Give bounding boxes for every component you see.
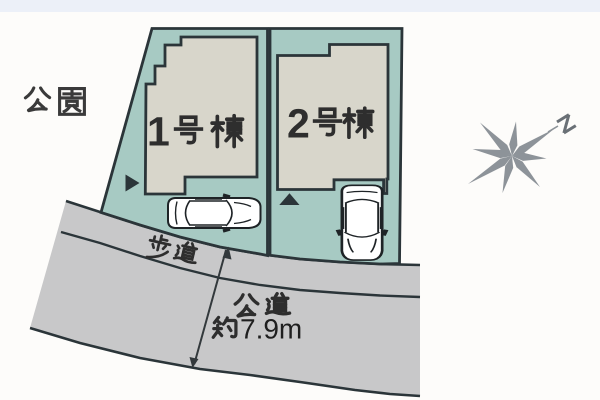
svg-text:1: 1 [147, 109, 170, 155]
svg-text:2: 2 [287, 101, 310, 147]
svg-text:7.9m: 7.9m [240, 314, 302, 345]
